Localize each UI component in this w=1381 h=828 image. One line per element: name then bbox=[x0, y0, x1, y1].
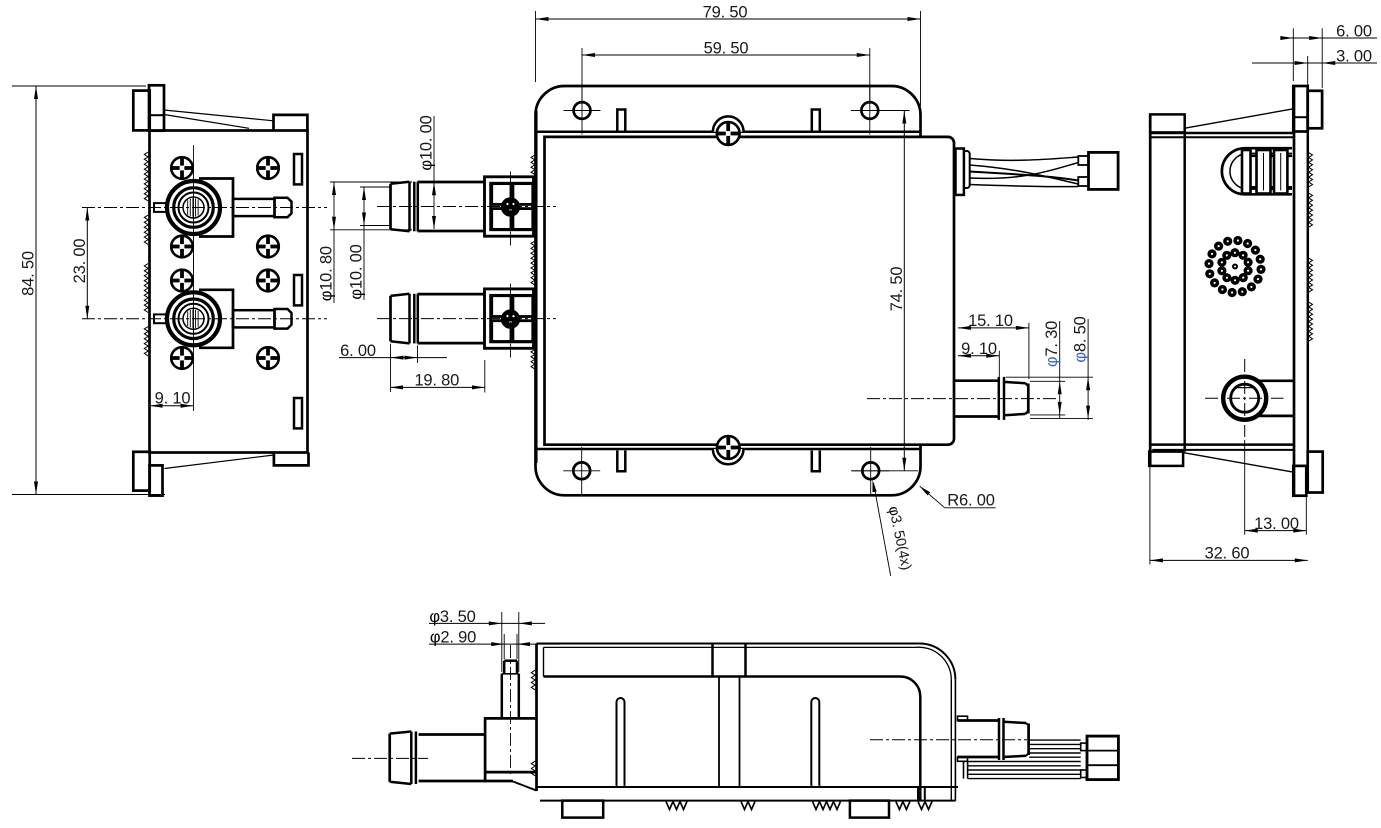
svg-text:84. 50: 84. 50 bbox=[20, 251, 38, 296]
svg-text:6. 00: 6. 00 bbox=[1336, 22, 1372, 40]
svg-text:φ10. 00: φ10. 00 bbox=[418, 115, 436, 170]
svg-text:13. 00: 13. 00 bbox=[1254, 515, 1299, 533]
svg-text:74. 50: 74. 50 bbox=[888, 267, 906, 312]
svg-text:59. 50: 59. 50 bbox=[704, 39, 749, 57]
svg-text:79. 50: 79. 50 bbox=[703, 3, 748, 21]
svg-text:3. 00: 3. 00 bbox=[1336, 47, 1372, 65]
svg-text:φ8. 50: φ8. 50 bbox=[1072, 316, 1090, 362]
svg-text:φ10. 80: φ10. 80 bbox=[318, 246, 336, 301]
svg-text:19. 80: 19. 80 bbox=[414, 372, 459, 390]
svg-text:9. 10: 9. 10 bbox=[155, 390, 191, 408]
svg-text:φ7. 30: φ7. 30 bbox=[1043, 321, 1061, 367]
svg-text:9. 10: 9. 10 bbox=[961, 340, 997, 358]
svg-text:R6. 00: R6. 00 bbox=[947, 492, 994, 510]
svg-text:φ3. 50: φ3. 50 bbox=[429, 608, 475, 626]
svg-text:15. 10: 15. 10 bbox=[968, 312, 1013, 330]
svg-text:φ10. 00: φ10. 00 bbox=[348, 244, 366, 299]
svg-text:6. 00: 6. 00 bbox=[340, 342, 376, 360]
svg-text:φ2. 90: φ2. 90 bbox=[430, 629, 476, 647]
svg-text:32. 60: 32. 60 bbox=[1205, 544, 1250, 562]
svg-text:23. 00: 23. 00 bbox=[71, 239, 89, 284]
